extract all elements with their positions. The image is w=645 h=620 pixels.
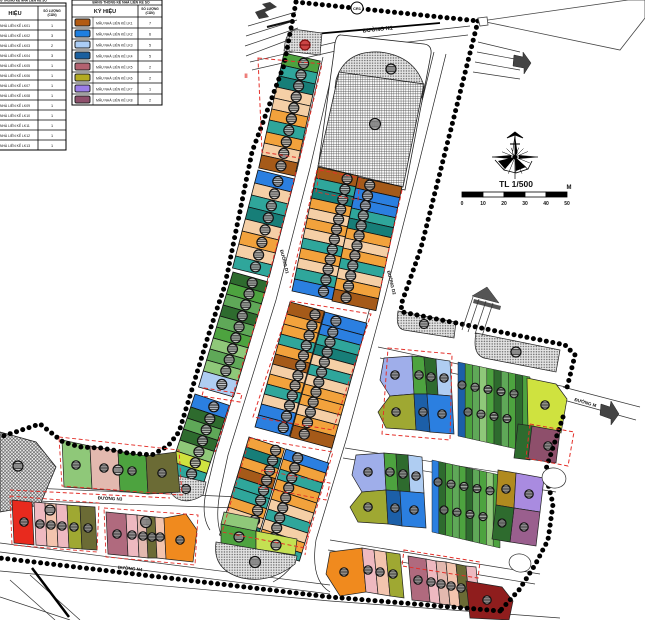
svg-text:NHÀ LIÊN KẾ LK08: NHÀ LIÊN KẾ LK08 [0,93,30,98]
svg-text:MẪU NHÀ LIÊN KẾ LK1: MẪU NHÀ LIÊN KẾ LK1 [96,21,133,26]
svg-text:1: 1 [51,84,53,88]
svg-text:(CĂN): (CĂN) [145,10,154,15]
svg-text:1: 1 [51,124,53,128]
svg-text:2: 2 [149,66,151,70]
svg-text:NHÀ LIÊN KẾ LK03: NHÀ LIÊN KẾ LK03 [0,43,30,48]
svg-text:M: M [567,185,572,191]
svg-text:CR1: CR1 [353,6,362,11]
svg-text:NHÀ LIÊN KẾ LK10: NHÀ LIÊN KẾ LK10 [0,113,30,118]
svg-text:1: 1 [51,94,53,98]
svg-text:BẢNG THỐNG KÊ NHÀ LIÊN KẾ SỐ: BẢNG THỐNG KÊ NHÀ LIÊN KẾ SỐ [92,0,150,5]
svg-text:KÝ HIỆU: KÝ HIỆU [94,7,116,15]
svg-text:1: 1 [51,144,53,148]
svg-text:NHÀ LIÊN KẾ LK09: NHÀ LIÊN KẾ LK09 [0,103,30,108]
svg-text:NHÀ LIÊN KẾ LK07: NHÀ LIÊN KẾ LK07 [0,83,30,88]
svg-text:MẪU NHÀ LIÊN KẾ LK8: MẪU NHÀ LIÊN KẾ LK8 [96,98,133,103]
svg-text:6: 6 [149,33,151,37]
svg-text:1: 1 [51,24,53,28]
svg-text:(CĂN): (CĂN) [47,12,56,17]
svg-text:MẪU NHÀ LIÊN KẾ LK5: MẪU NHÀ LIÊN KẾ LK5 [96,65,133,70]
svg-text:NHÀ LIÊN KẾ LK04: NHÀ LIÊN KẾ LK04 [0,53,30,58]
svg-text:NHÀ LIÊN KẾ LK02: NHÀ LIÊN KẾ LK02 [0,33,30,38]
svg-text:NHÀ LIÊN KẾ LK11: NHÀ LIÊN KẾ LK11 [0,123,30,128]
svg-text:NHÀ LIÊN KẾ LK13: NHÀ LIÊN KẾ LK13 [0,143,30,148]
svg-text:1: 1 [149,88,151,92]
svg-text:MẪU NHÀ LIÊN KẾ LK4: MẪU NHÀ LIÊN KẾ LK4 [96,54,133,59]
svg-text:MẪU NHÀ LIÊN KẾ LK6: MẪU NHÀ LIÊN KẾ LK6 [96,76,133,81]
svg-text:10: 10 [480,201,486,207]
svg-text:NHÀ LIÊN KẾ LK12: NHÀ LIÊN KẾ LK12 [0,133,30,138]
svg-text:MẪU NHÀ LIÊN KẾ LK7: MẪU NHÀ LIÊN KẾ LK7 [96,87,133,92]
svg-text:1: 1 [51,64,53,68]
svg-text:BẢNG THỐNG KÊ NHÀ LIÊN KẾ SỐ: BẢNG THỐNG KÊ NHÀ LIÊN KẾ SỐ [0,0,47,3]
svg-text:2: 2 [149,99,151,103]
svg-text:NHÀ LIÊN KẾ LK05: NHÀ LIÊN KẾ LK05 [0,63,30,68]
svg-text:3: 3 [51,34,53,38]
svg-text:NHÀ LIÊN KẾ LK06: NHÀ LIÊN KẾ LK06 [0,73,30,78]
svg-text:NHÀ LIÊN KẾ LK01: NHÀ LIÊN KẾ LK01 [0,23,30,28]
svg-text:MẪU NHÀ LIÊN KẾ LK2: MẪU NHÀ LIÊN KẾ LK2 [96,32,133,37]
svg-text:50: 50 [564,201,570,207]
svg-text:1: 1 [51,134,53,138]
svg-text:20: 20 [501,201,507,207]
svg-text:7: 7 [149,22,151,26]
svg-text:MẪU NHÀ LIÊN KẾ LK3: MẪU NHÀ LIÊN KẾ LK3 [96,43,133,48]
svg-text:2: 2 [149,77,151,81]
svg-text:1: 1 [51,114,53,118]
svg-text:1: 1 [51,74,53,78]
svg-text:30: 30 [522,201,528,207]
svg-text:5: 5 [149,55,151,59]
svg-text:0: 0 [461,201,464,207]
svg-text:3: 3 [51,54,53,58]
svg-text:HIỆU: HIỆU [8,9,21,17]
svg-text:TL 1/500: TL 1/500 [499,179,533,189]
svg-text:1: 1 [51,104,53,108]
svg-text:5: 5 [149,44,151,48]
svg-text:40: 40 [543,201,549,207]
svg-text:II: II [244,74,248,80]
svg-text:2: 2 [51,44,53,48]
